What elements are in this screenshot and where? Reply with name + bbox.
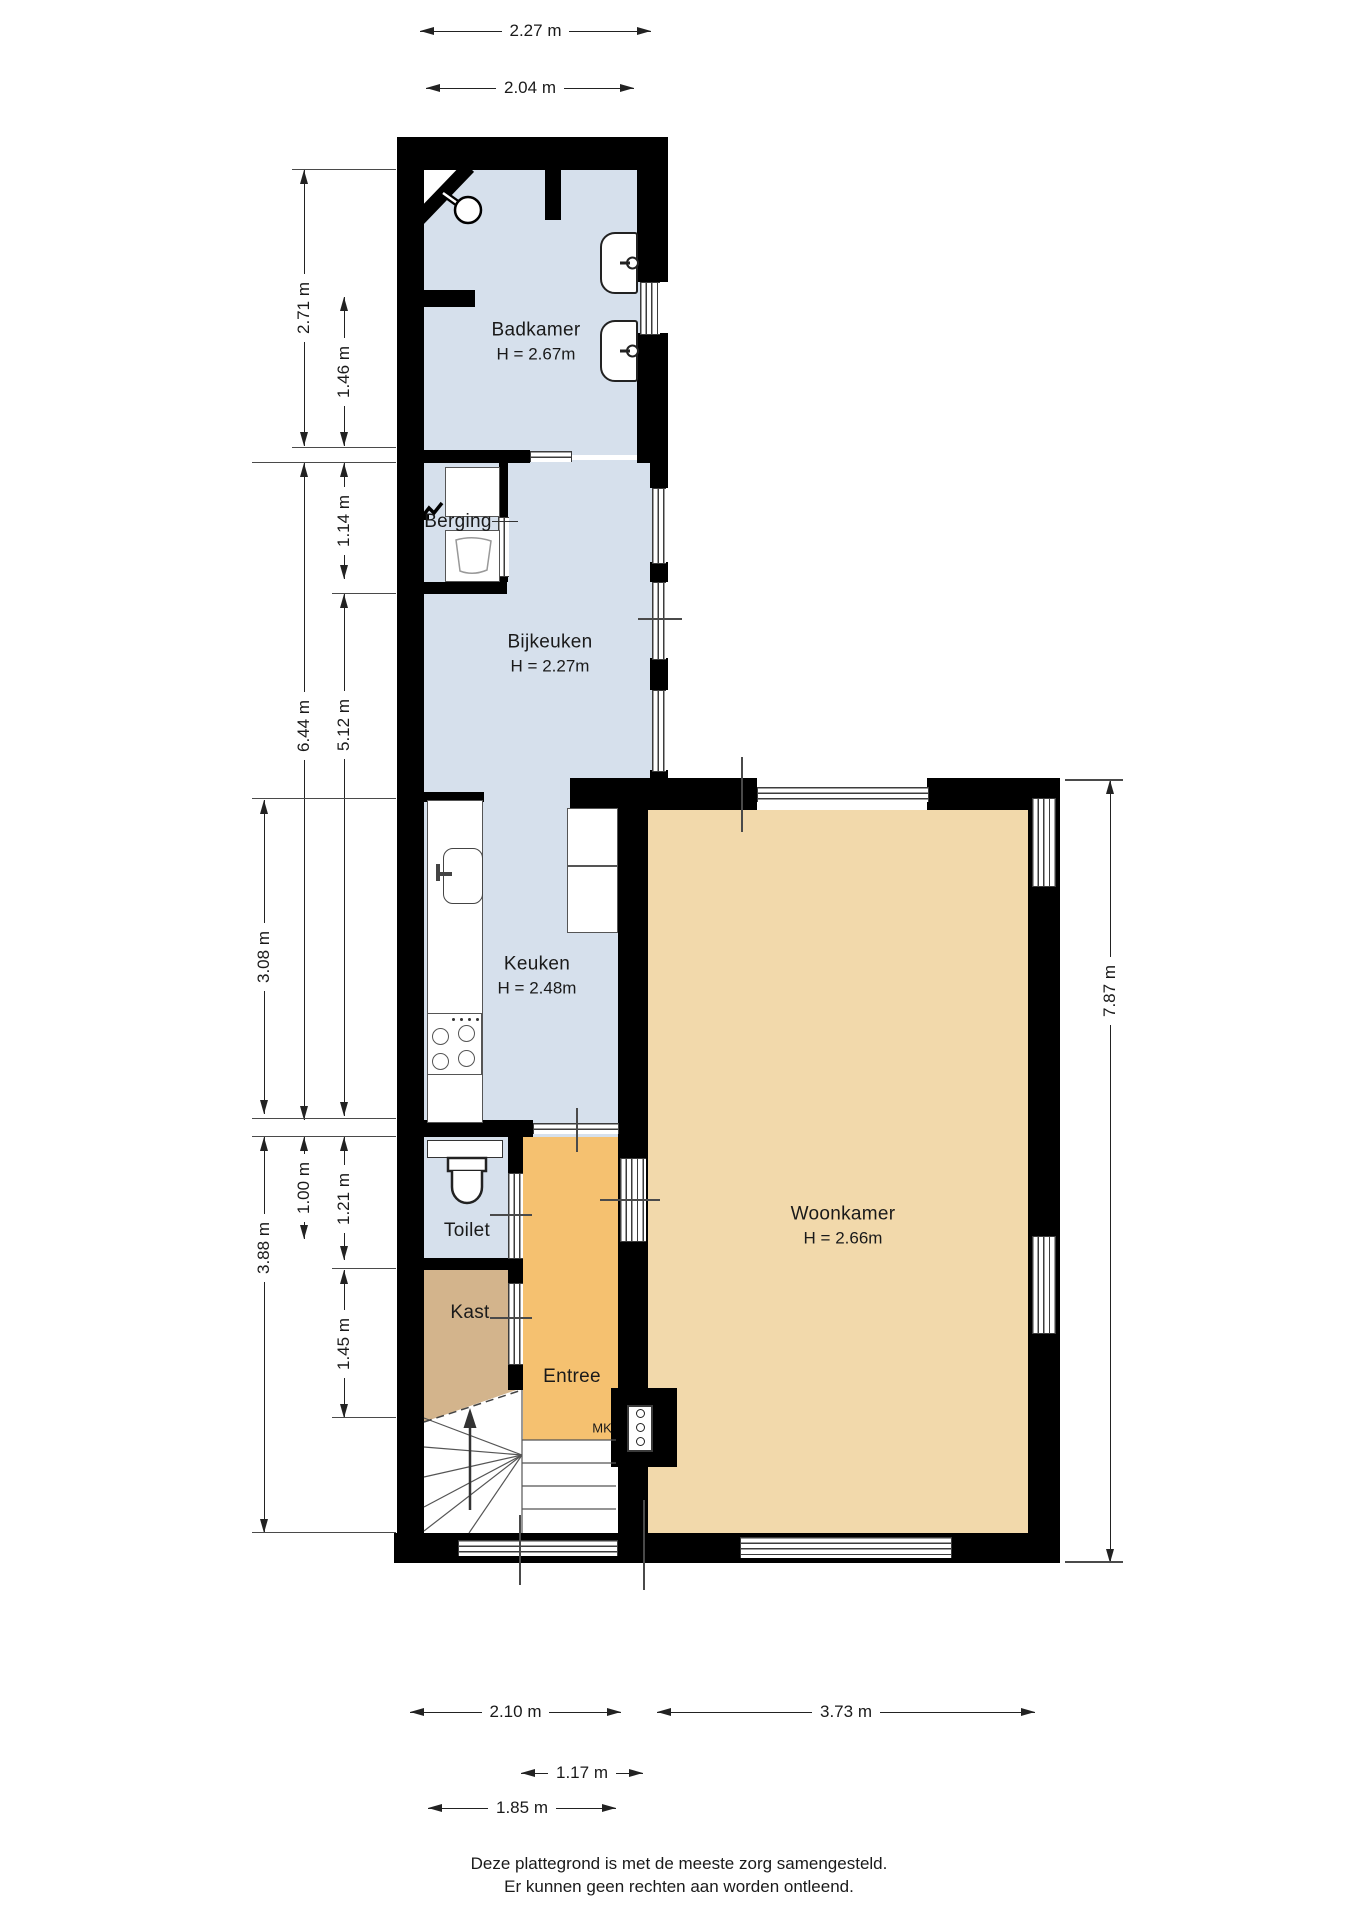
tick-right-bottom (1065, 1561, 1123, 1563)
room-label-meterkast: MK (592, 1421, 612, 1436)
dim-label: 1.21 m (334, 1165, 354, 1233)
burner-icon-3 (432, 1053, 449, 1070)
tick-keuken-door (576, 1108, 578, 1152)
wall-badkamer-bottom (397, 450, 530, 463)
berging-sink-outline (448, 534, 498, 579)
wall-right (1028, 778, 1060, 1563)
badkamer-window (640, 282, 660, 335)
dim-bottom-373: 3.73 m (657, 1699, 1035, 1725)
dim-label: 1.85 m (488, 1798, 556, 1818)
room-label-toilet: Toilet (444, 1220, 490, 1242)
dim-label: 3.08 m (254, 923, 274, 991)
kast-floor (424, 1270, 508, 1390)
kitchen-tall-unit-top (567, 808, 618, 866)
wall-left (397, 137, 424, 1563)
room-label-berging: Berging (424, 511, 492, 533)
tick-left-e (252, 1136, 396, 1137)
tick-left-a (252, 462, 396, 463)
woonkamer-top-window (757, 787, 929, 802)
meterkast-name: MK (592, 1421, 612, 1436)
dim-bottom-210: 2.10 m (410, 1699, 621, 1725)
dim-left-100: 1.00 m (289, 1137, 319, 1239)
bijkeuken-window-3 (652, 690, 666, 772)
tick-right-top (1065, 779, 1123, 781)
woonkamer-right-window-upper (1032, 798, 1056, 887)
dim-bottom-117: 1.17 m (521, 1760, 643, 1786)
room-label-kast: Kast (450, 1302, 489, 1324)
tick-woonkamer-top-window (741, 757, 743, 832)
dim-label: 6.44 m (294, 692, 314, 760)
wall-kast-right-bottom (508, 1363, 523, 1390)
washbasin-icon-2 (600, 320, 638, 382)
wall-bijkeuken-right-3 (650, 658, 668, 690)
floor-plan: Badkamer H = 2.67m Berging Bijkeuken H =… (0, 0, 1358, 1920)
room-label-badkamer: Badkamer H = 2.67m (492, 320, 581, 365)
faucet-stem (620, 262, 630, 265)
dim-label: 1.14 m (334, 487, 354, 555)
disclaimer-line-1: Deze plattegrond is met de meeste zorg s… (0, 1852, 1358, 1875)
disclaimer: Deze plattegrond is met de meeste zorg s… (0, 1852, 1358, 1898)
badkamer-height: H = 2.67m (492, 345, 581, 365)
dim-left-512: 5.12 m (329, 594, 359, 1116)
burner-icon-2 (458, 1025, 475, 1042)
berging-appliance-1 (445, 467, 500, 517)
toilet-icon (446, 1156, 488, 1214)
tick-left-h (332, 1268, 396, 1269)
dim-left-146: 1.46 m (329, 297, 359, 446)
woonkamer-height: H = 2.66m (791, 1229, 896, 1249)
dim-label: 2.10 m (482, 1702, 550, 1722)
badkamer-bijkeuken-window (530, 451, 572, 462)
room-label-keuken: Keuken H = 2.48m (498, 954, 577, 999)
woonkamer-name: Woonkamer (791, 1204, 896, 1226)
tick-left-c (252, 798, 396, 799)
dim-label: 1.00 m (294, 1154, 314, 1222)
tick-left-d (252, 1118, 396, 1119)
kitchen-tall-unit-bottom (567, 866, 618, 933)
woonkamer-bottom-window (740, 1537, 952, 1558)
dim-left-388: 3.88 m (249, 1137, 279, 1533)
tick-kast-door (490, 1317, 532, 1319)
wall-bijkeuken-right-2 (650, 562, 668, 582)
dim-label: 1.17 m (548, 1763, 616, 1783)
toilet-name: Toilet (444, 1220, 490, 1242)
stairs (424, 1388, 616, 1533)
dim-left-145: 1.45 m (329, 1270, 359, 1418)
burner-icon-1 (432, 1028, 449, 1045)
tick-bottom-2 (643, 1500, 645, 1590)
tick-entree-window (600, 1199, 660, 1201)
dim-label: 3.73 m (812, 1702, 880, 1722)
room-label-bijkeuken: Bijkeuken H = 2.27m (507, 632, 592, 677)
faucet-stem (620, 350, 630, 353)
bijkeuken-height: H = 2.27m (507, 657, 592, 677)
entree-bottom-window (458, 1540, 618, 1556)
room-label-entree: Entree (543, 1366, 601, 1388)
dim-label: 5.12 m (334, 691, 354, 759)
dim-label: 3.88 m (254, 1214, 274, 1282)
kitchen-faucet-arm (436, 872, 452, 876)
room-label-woonkamer: Woonkamer H = 2.66m (791, 1204, 896, 1249)
tick-left-i (332, 1417, 396, 1418)
dim-left-308: 3.08 m (249, 800, 279, 1114)
dim-left-644: 6.44 m (289, 463, 319, 1120)
tick-toilet-door (490, 1214, 532, 1216)
wall-woonkamer-top-left (570, 778, 757, 810)
woonkamer-right-window-lower (1032, 1236, 1056, 1334)
dim-bottom-185: 1.85 m (428, 1795, 616, 1821)
tick-left-b (332, 593, 396, 594)
wall-toilet-right-top (508, 1137, 523, 1173)
dim-label: 2.71 m (294, 274, 314, 342)
dim-top-204: 2.04 m (426, 75, 634, 101)
washbasin-icon-1 (600, 232, 638, 294)
burner-icon-4 (458, 1050, 475, 1067)
berging-name: Berging (424, 511, 492, 533)
badkamer-name: Badkamer (492, 320, 581, 342)
tick-left-g (292, 447, 396, 448)
dim-label: 1.46 m (334, 338, 354, 406)
meter-circle-2 (636, 1423, 645, 1432)
tick-left-j (252, 1532, 396, 1533)
wall-toilet-kast (397, 1258, 523, 1270)
dim-left-114: 1.14 m (329, 463, 359, 579)
dim-left-271: 2.71 m (289, 170, 319, 446)
toilet-door (508, 1173, 523, 1259)
berging-leader-line (492, 521, 518, 522)
wall-berging-bottom (397, 582, 507, 594)
wall-badkamer-right-lower (637, 333, 668, 463)
bijkeuken-window-2 (652, 582, 666, 660)
dim-left-121: 1.21 m (329, 1137, 359, 1260)
dim-top-227: 2.27 m (420, 18, 651, 44)
wall-kast-right-top (508, 1270, 523, 1283)
wall-bijkeuken-right-1 (650, 450, 668, 488)
dim-label: 1.45 m (334, 1310, 354, 1378)
meter-circle-3 (636, 1437, 645, 1446)
dim-right-787: 7.87 m (1095, 780, 1125, 1563)
bijkeuken-window-1 (652, 488, 666, 564)
kitchen-sink (443, 848, 483, 904)
tick-bijkeuken-window (638, 618, 682, 620)
woonkamer-floor (648, 810, 1028, 1533)
dim-label: 2.27 m (502, 21, 570, 41)
dim-label: 7.87 m (1100, 957, 1120, 1025)
dim-label: 2.04 m (496, 78, 564, 98)
kast-door (508, 1283, 523, 1365)
disclaimer-line-2: Er kunnen geen rechten aan worden ontlee… (0, 1875, 1358, 1898)
keuken-height: H = 2.48m (498, 979, 577, 999)
meter-circle-1 (636, 1409, 645, 1418)
kast-name: Kast (450, 1302, 489, 1324)
keuken-name: Keuken (498, 954, 577, 976)
bijkeuken-name: Bijkeuken (507, 632, 592, 654)
tick-left-f (292, 169, 396, 170)
stove-knobs (452, 1018, 479, 1021)
entree-name: Entree (543, 1366, 601, 1388)
wall-badkamer-stub-left (424, 290, 475, 307)
